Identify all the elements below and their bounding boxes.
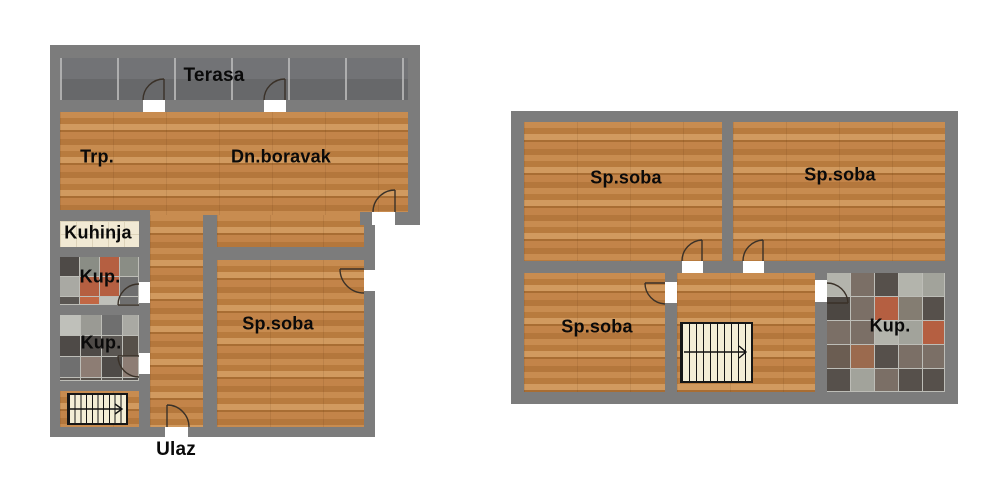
room-label-spavaca-soba: Sp.soba bbox=[242, 314, 313, 335]
bedroom1-floor-upper bbox=[524, 122, 722, 261]
room-label-trpezarija: Trp. bbox=[80, 147, 114, 168]
room-label-spavaca-soba-1: Sp.soba bbox=[590, 168, 661, 189]
room-label-ulaz: Ulaz bbox=[156, 439, 196, 461]
wall-segment bbox=[408, 45, 420, 225]
bedroom-floor-lower bbox=[217, 260, 364, 427]
room-label-kupatilo-upper: Kup. bbox=[870, 316, 911, 337]
door-gap-bedroom2-upper bbox=[743, 261, 764, 273]
wall-segment bbox=[217, 247, 364, 260]
room-label-terasa: Terasa bbox=[183, 65, 244, 87]
room-label-kupatilo-1: Kup. bbox=[80, 267, 121, 288]
stairs-lower bbox=[67, 393, 128, 425]
room-label-kupatilo-2: Kup. bbox=[81, 333, 122, 354]
living-extension-floor bbox=[217, 215, 364, 247]
wall-segment bbox=[60, 100, 408, 112]
door-gap-terrace-1 bbox=[143, 100, 165, 112]
hallway-floor bbox=[150, 215, 203, 427]
wall-segment bbox=[60, 381, 150, 391]
wall-segment bbox=[511, 111, 958, 122]
wall-segment bbox=[511, 392, 958, 404]
door-gap-bathroom2 bbox=[139, 353, 150, 374]
wall-segment bbox=[511, 261, 958, 273]
door-gap-bedroom1-upper bbox=[682, 261, 703, 273]
door-gap-living-right bbox=[372, 212, 395, 225]
wall-segment bbox=[50, 427, 375, 437]
wall-segment bbox=[511, 111, 524, 404]
room-label-spavaca-soba-2: Sp.soba bbox=[804, 165, 875, 186]
door-gap-bedroom3-upper bbox=[665, 282, 677, 303]
wall-segment bbox=[139, 210, 150, 427]
wall-segment bbox=[50, 45, 420, 58]
wall-segment bbox=[364, 212, 375, 437]
room-label-kuhinja: Kuhinja bbox=[64, 223, 131, 244]
wall-segment bbox=[60, 305, 150, 315]
room-label-dnevni-boravak: Dn.boravak bbox=[231, 147, 331, 168]
wall-segment bbox=[50, 45, 60, 437]
door-gap-bathroom-upper bbox=[815, 280, 827, 302]
wall-segment bbox=[722, 122, 733, 261]
wall-segment bbox=[945, 111, 958, 404]
stairs-upper bbox=[680, 322, 753, 383]
wall-segment bbox=[50, 210, 150, 221]
bedroom2-floor-upper bbox=[733, 122, 945, 261]
door-gap-bathroom1 bbox=[139, 282, 150, 303]
wall-segment bbox=[203, 215, 217, 427]
door-gap-bedroom-lower bbox=[364, 270, 375, 291]
door-gap-terrace-2 bbox=[264, 100, 286, 112]
room-label-spavaca-soba-3: Sp.soba bbox=[561, 317, 632, 338]
floorplan-canvas: Terasa Trp. Dn.boravak Kuhinja Kup. Kup.… bbox=[0, 0, 1008, 486]
wall-segment bbox=[60, 247, 150, 257]
